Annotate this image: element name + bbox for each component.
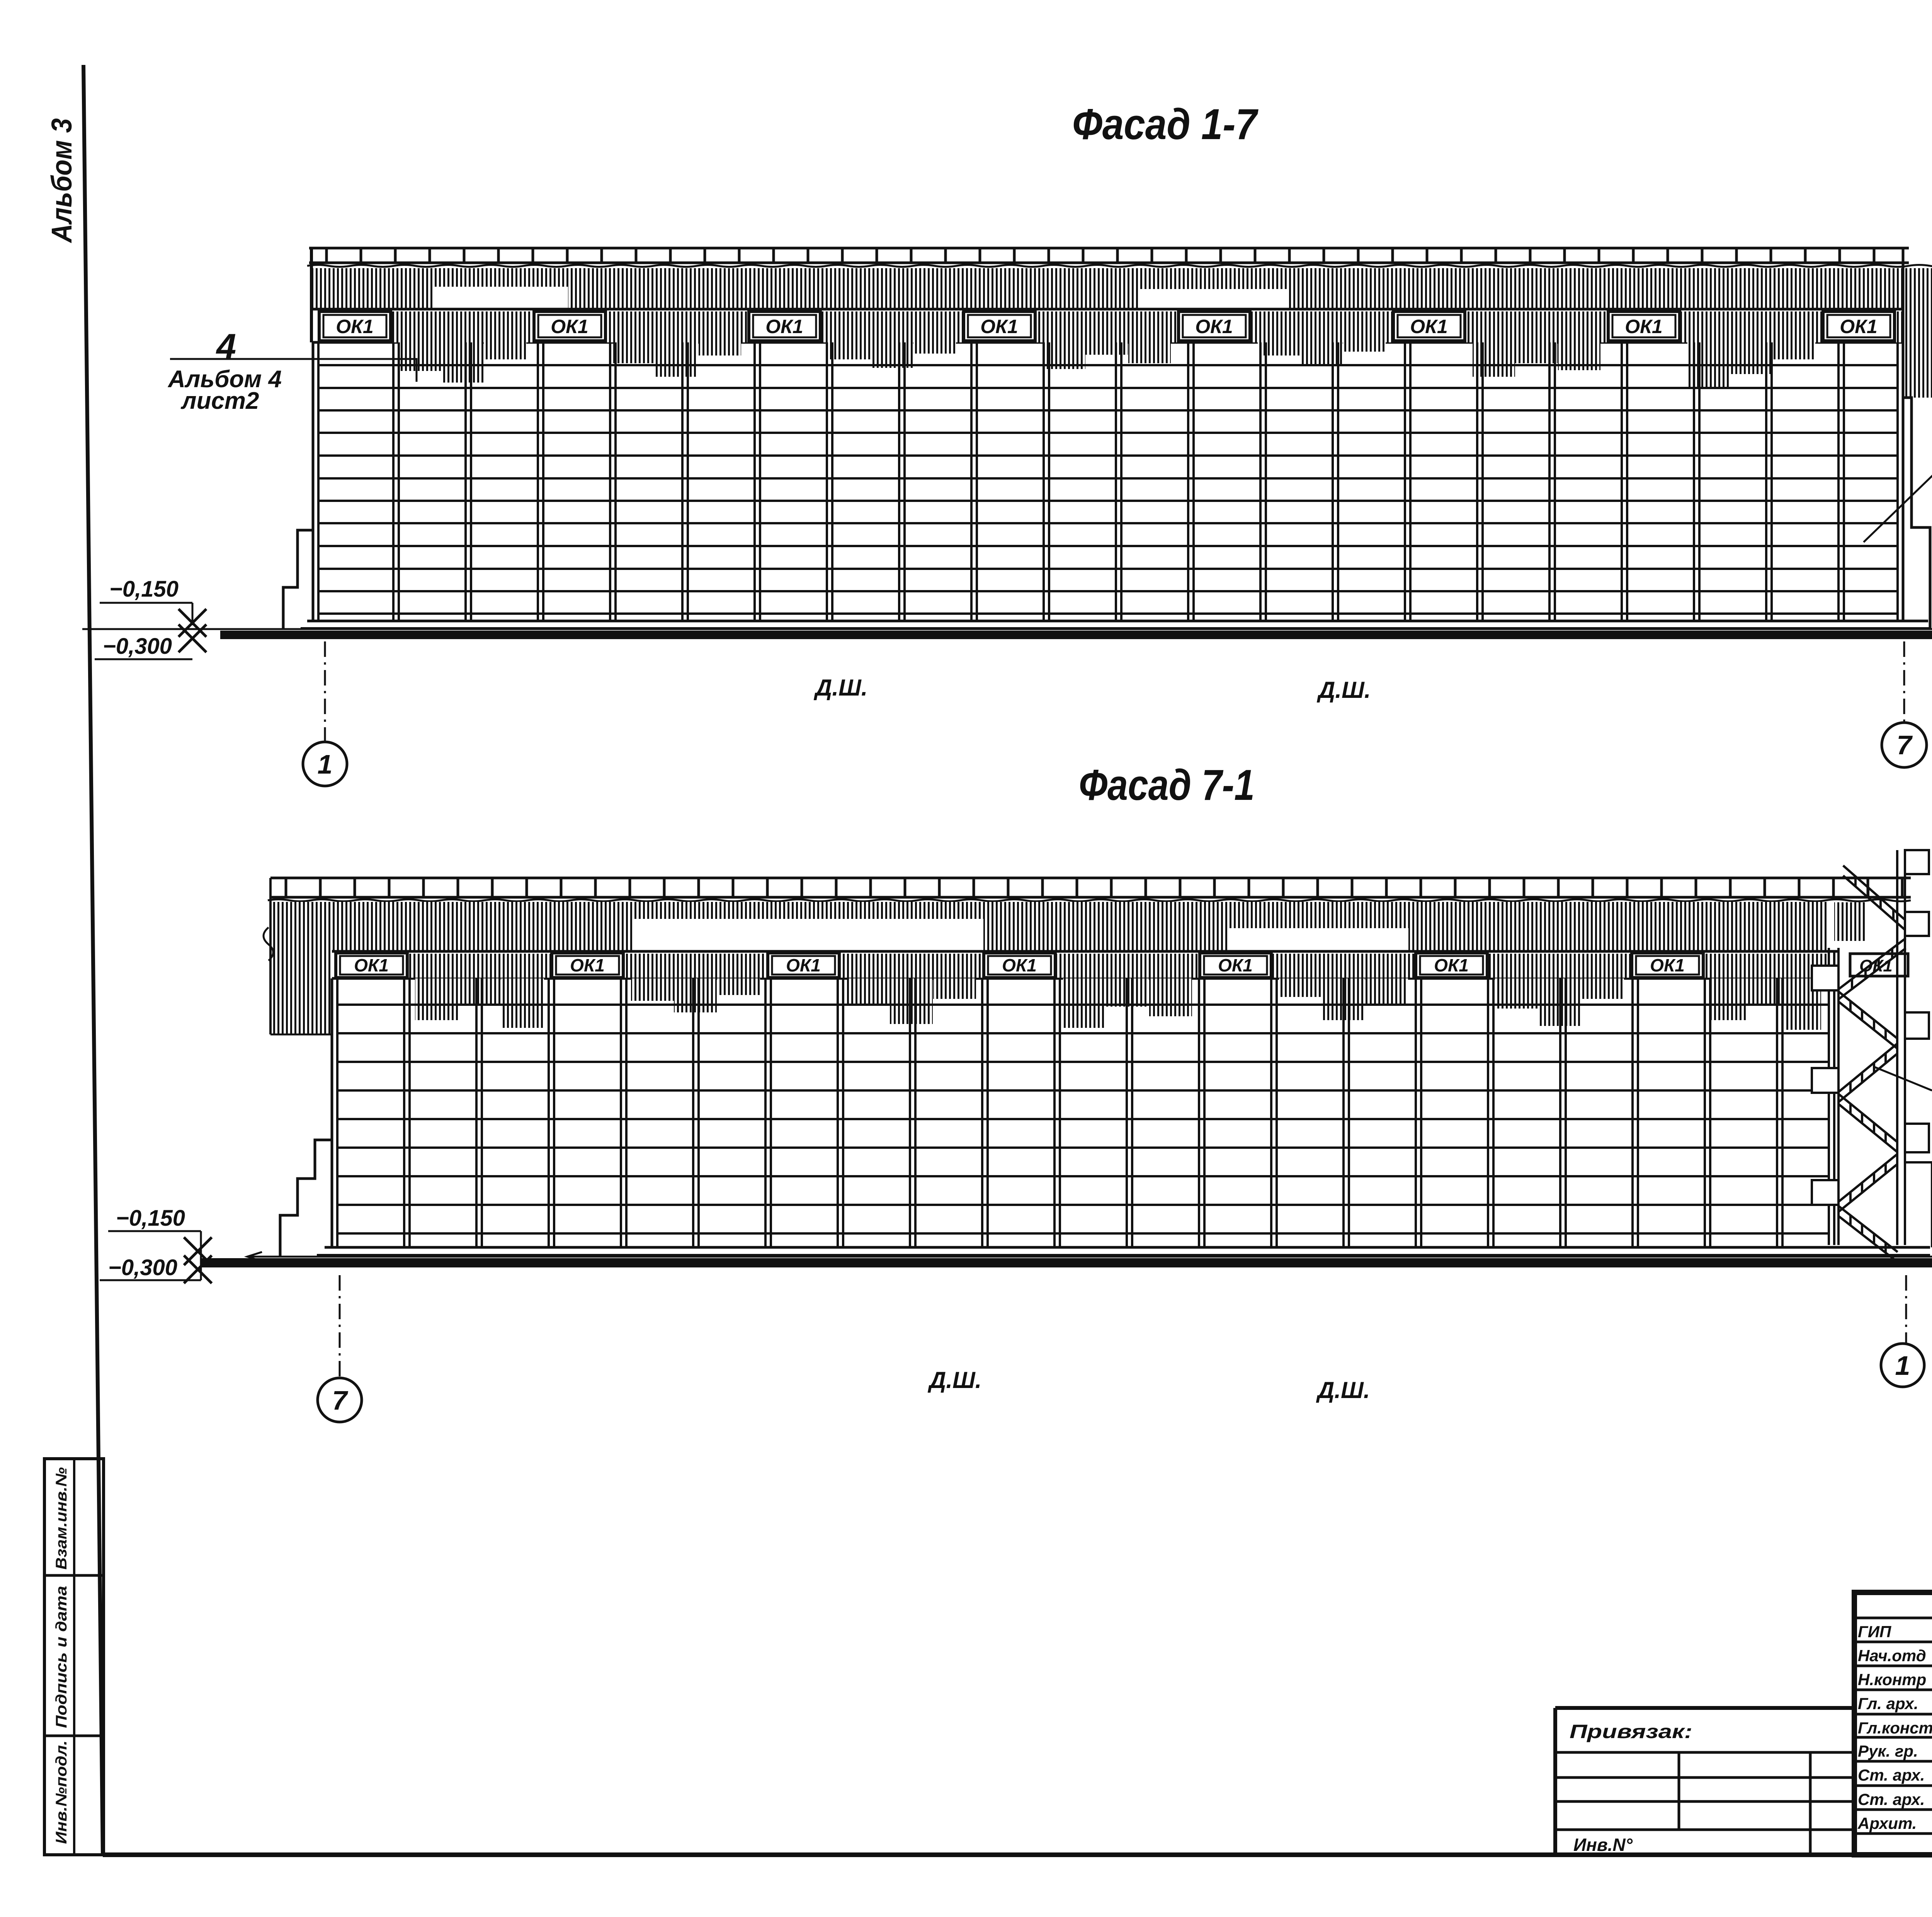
- svg-text:ОК1: ОК1: [1434, 955, 1469, 975]
- svg-text:Подпись и дата: Подпись и дата: [53, 1586, 70, 1728]
- svg-text:Ст. арх.: Ст. арх.: [1858, 1790, 1925, 1808]
- svg-text:−0,300: −0,300: [103, 634, 172, 659]
- svg-text:Д.Ш.: Д.Ш.: [927, 1367, 981, 1393]
- svg-text:4: 4: [216, 327, 236, 366]
- svg-text:Инв.N°: Инв.N°: [1573, 1835, 1633, 1855]
- svg-text:ОК1: ОК1: [980, 316, 1018, 337]
- svg-text:−0,300: −0,300: [108, 1255, 177, 1280]
- svg-text:лист2: лист2: [180, 388, 259, 414]
- svg-text:ОК1: ОК1: [765, 316, 803, 337]
- svg-text:Гл. арх.: Гл. арх.: [1858, 1694, 1918, 1713]
- svg-text:Нач.отд: Нач.отд: [1858, 1647, 1926, 1665]
- svg-text:ОК1: ОК1: [1410, 316, 1447, 337]
- svg-text:−0,150: −0,150: [116, 1206, 185, 1231]
- svg-text:Д.Ш.: Д.Ш.: [1316, 1377, 1370, 1403]
- svg-text:Привязак:: Привязак:: [1570, 1721, 1692, 1742]
- svg-text:ОК1: ОК1: [1195, 316, 1233, 337]
- svg-text:Н.контр: Н.контр: [1858, 1670, 1926, 1689]
- svg-text:1: 1: [1895, 1351, 1910, 1381]
- svg-text:ОК1: ОК1: [1859, 956, 1893, 975]
- svg-text:ОК1: ОК1: [1218, 955, 1253, 975]
- svg-text:ОК1: ОК1: [1650, 955, 1685, 975]
- svg-text:ОК1: ОК1: [1625, 316, 1662, 337]
- svg-text:Взам.инв.№: Взам.инв.№: [53, 1467, 70, 1570]
- svg-text:Архит.: Архит.: [1857, 1814, 1917, 1832]
- svg-text:Рук. гр.: Рук. гр.: [1858, 1742, 1918, 1760]
- svg-text:ОК1: ОК1: [354, 955, 389, 975]
- svg-text:Фасад 1-7: Фасад 1-7: [1072, 100, 1259, 148]
- svg-text:Альбом 3: Альбом 3: [46, 118, 78, 243]
- svg-text:Фасад 7-1: Фасад 7-1: [1079, 761, 1255, 809]
- svg-text:ГИП: ГИП: [1858, 1623, 1891, 1641]
- svg-text:ОК1: ОК1: [1002, 955, 1037, 975]
- svg-text:7: 7: [1897, 730, 1913, 760]
- svg-text:Ст. арх.: Ст. арх.: [1858, 1766, 1925, 1784]
- svg-text:ОК1: ОК1: [1840, 316, 1877, 337]
- svg-text:Д.Ш.: Д.Ш.: [1316, 677, 1371, 703]
- svg-text:7: 7: [332, 1385, 349, 1415]
- svg-text:−0,150: −0,150: [109, 577, 179, 602]
- svg-text:ОК1: ОК1: [551, 316, 588, 337]
- svg-text:ОК1: ОК1: [570, 955, 605, 975]
- svg-text:Д.Ш.: Д.Ш.: [813, 675, 867, 701]
- svg-text:ОК1: ОК1: [786, 955, 821, 975]
- svg-text:1: 1: [318, 749, 333, 779]
- svg-text:Инв.№подл.: Инв.№подл.: [53, 1740, 70, 1844]
- svg-text:ОК1: ОК1: [336, 316, 373, 337]
- svg-text:Гл.констр.: Гл.констр.: [1858, 1719, 1932, 1737]
